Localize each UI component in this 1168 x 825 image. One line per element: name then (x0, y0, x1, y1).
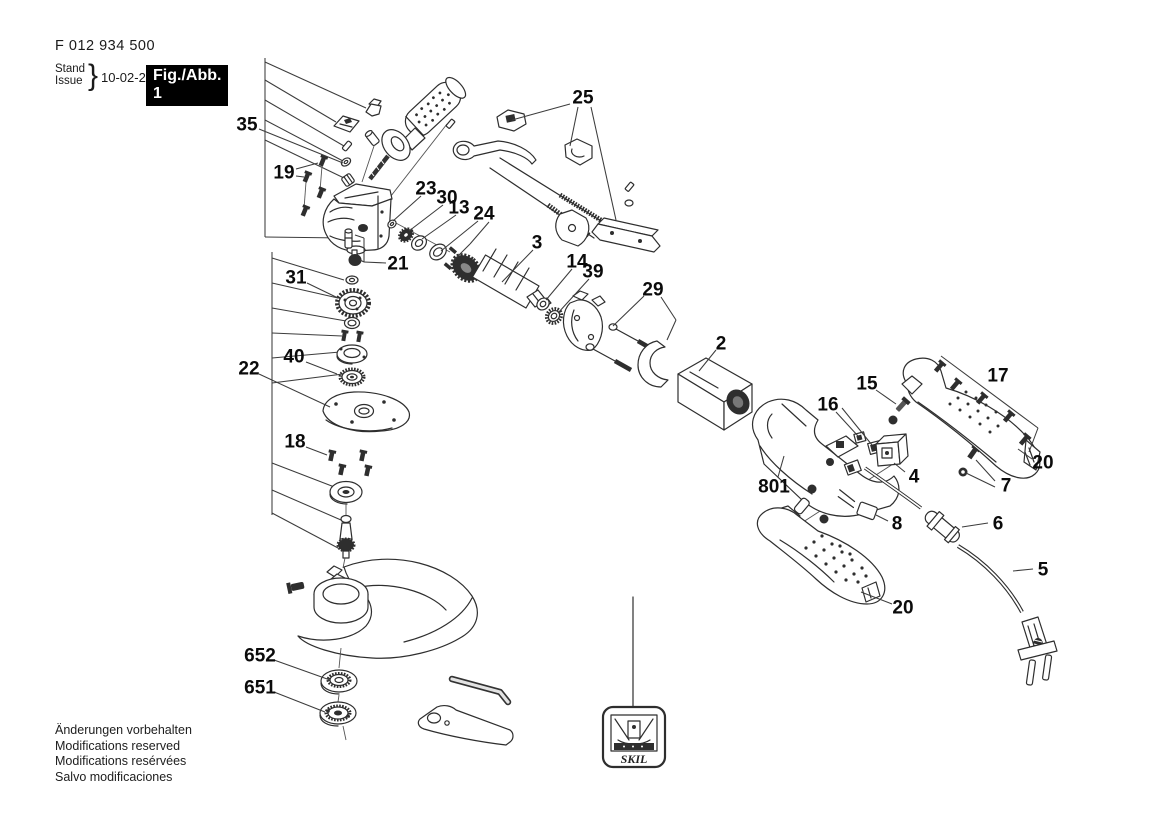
callout-leader-22 (259, 374, 330, 407)
gear-wheel-31 (337, 290, 369, 316)
hex-key (452, 679, 508, 702)
callout-leader-19 (296, 176, 304, 177)
switch-4 (876, 434, 908, 466)
callout-20: 20 (892, 598, 913, 619)
screw-pair (340, 329, 364, 342)
callout-8: 8 (892, 514, 903, 535)
callout-leader-40 (306, 362, 337, 374)
callout-4: 4 (909, 467, 920, 488)
callout-leader-25 (591, 107, 616, 220)
callout-leader-35 (259, 129, 343, 163)
callout-23: 23 (415, 179, 436, 200)
callout-6: 6 (993, 514, 1004, 535)
cable-gland-6 (921, 506, 964, 546)
air-baffle (638, 341, 668, 387)
callout-leader-31 (307, 283, 338, 298)
callout-7: 7 (1001, 476, 1012, 497)
brand-tag: SKIL (603, 597, 665, 767)
screws-18 (327, 449, 373, 476)
bearing-cover-plate-22 (323, 392, 409, 432)
callout-leader-13 (422, 215, 456, 239)
callout-leader-651 (274, 692, 325, 712)
callout-leader-7 (966, 473, 995, 487)
callout-35: 35 (236, 115, 258, 136)
bearing-flange (337, 345, 367, 364)
callout-5: 5 (1038, 560, 1049, 581)
side-handle (370, 74, 470, 179)
callout-leader-652 (274, 660, 330, 680)
gear-housing (323, 184, 392, 254)
ball-bearing-40 (340, 369, 364, 385)
spindle-lock-assembly-25 (453, 110, 660, 252)
callout-25: 25 (572, 88, 594, 109)
callout-31: 31 (285, 268, 307, 289)
wheel-guard (286, 559, 477, 658)
power-plug (1018, 617, 1057, 685)
callout-2: 2 (716, 334, 727, 355)
callout-17: 17 (987, 366, 1008, 387)
callout-leader-30 (409, 205, 443, 231)
callout-leader-29 (613, 296, 644, 326)
callout-leader-29 (667, 320, 676, 340)
clamping-nut-651 (320, 702, 356, 740)
backing-flange-652 (321, 670, 357, 694)
handle-shell-top-20 (902, 358, 1040, 478)
callout-19: 19 (273, 163, 294, 184)
callout-16: 16 (817, 395, 838, 416)
armature-3 (447, 249, 551, 308)
parts-diagram-page: F 012 934 500 Stand Issue } 10-02-24 Fig… (0, 0, 1168, 825)
washer-24 (427, 241, 457, 270)
callout-24: 24 (473, 204, 495, 225)
callout-leader-25 (512, 104, 570, 120)
callout-18: 18 (284, 432, 305, 453)
bearing-small (345, 318, 360, 329)
spindle-flange (330, 482, 362, 505)
callout-leader-5 (1013, 569, 1033, 571)
callout-22: 22 (238, 359, 259, 380)
brand-name: SKIL (621, 752, 648, 766)
callout-21: 21 (387, 254, 409, 275)
callout-13: 13 (448, 198, 469, 219)
exploded-view-drawing: SKIL 35192523301324314392922131402218151… (0, 0, 1168, 825)
callout-39: 39 (582, 262, 603, 283)
pin-wrench (418, 706, 513, 745)
callout-leader-8 (876, 515, 888, 521)
callout-652: 652 (244, 646, 276, 667)
callout-29: 29 (642, 280, 663, 301)
callout-3: 3 (532, 233, 543, 254)
callout-leader-19 (296, 163, 318, 169)
field-stator-2 (678, 358, 754, 430)
callout-leader-21 (364, 262, 386, 263)
callout-40: 40 (283, 347, 304, 368)
callout-651: 651 (244, 678, 276, 699)
callout-leader-23 (393, 196, 421, 221)
callout-15: 15 (856, 374, 878, 395)
callout-leader-18 (306, 447, 327, 455)
callout-leader-15 (876, 390, 896, 404)
spindle-shaft (338, 504, 354, 568)
callout-20: 20 (1032, 453, 1053, 474)
callout-leader-14 (546, 269, 572, 300)
callout-leader-24 (441, 221, 478, 251)
callout-801: 801 (758, 477, 790, 498)
callout-leader-6 (962, 523, 988, 527)
